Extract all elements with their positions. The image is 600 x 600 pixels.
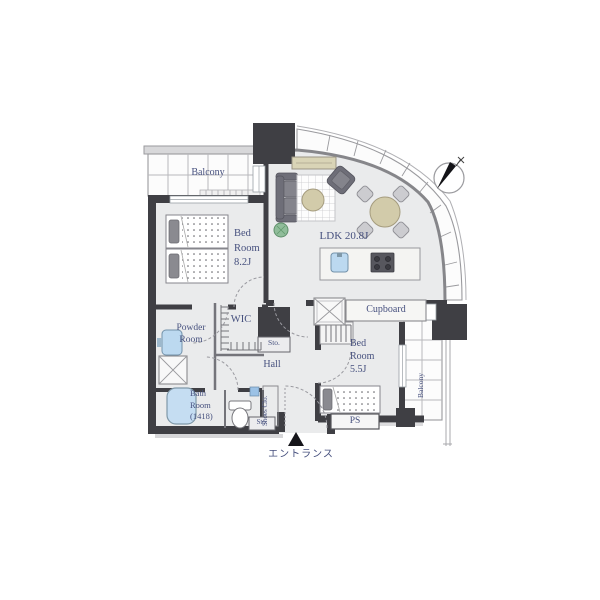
tv-board [292,157,336,169]
label-bathroom-line1: Bath [190,388,213,400]
label-balcony-top: Balcony [166,167,250,179]
dining-table [370,197,400,227]
bed [166,215,228,248]
entrance-arrow-icon [288,432,304,446]
label-bedroom-main-line3: 8.2J [234,256,260,271]
label-bedroom-second-line2: Room [350,350,374,363]
coffee-table [302,189,324,211]
label-bedroom-second-line3: 5.5J [350,363,374,376]
label-hall: Hall [250,359,294,371]
label-balcony-right: Balcony [417,346,426,398]
label-entrance: エントランス [256,449,346,461]
label-wic: WIC [224,314,258,326]
label-pipe-space: PS [331,416,379,427]
label-bathroom: Bath Room (1418) [190,388,213,423]
bed [166,249,228,283]
label-bedroom-main-line1: Bed [234,227,260,242]
label-storage-upper: Sto. [258,339,290,348]
label-bedroom-second: Bed Room 5.5J [350,337,374,376]
label-bedroom-main: Bed Room 8.2J [234,227,260,271]
label-bathroom-line2: Room [190,400,213,412]
kitchen-counter [320,248,420,280]
label-ldk: LDK 20.8J [312,230,376,243]
stove [371,253,394,272]
label-cupboard: Cupboard [346,304,426,316]
floor-plan: Balcony Bed Room 8.2J LDK 20.8J Cupboard… [0,0,600,600]
label-bathroom-line3: (1418) [190,411,213,423]
floor-plan-drawing [0,0,600,600]
label-bedroom-main-line2: Room [234,242,260,257]
plant [274,223,288,237]
bed [320,386,380,413]
label-powder-room-line1: Powder [166,323,216,335]
refrigerator-space [314,298,345,325]
north-arrow-icon [434,157,464,193]
label-powder-room: Powder Room [166,323,216,346]
label-powder-room-line2: Room [166,335,216,347]
label-bedroom-second-line1: Bed [350,337,374,350]
washing-machine-space [159,356,187,384]
label-storage-lower: Sto. [249,418,275,426]
